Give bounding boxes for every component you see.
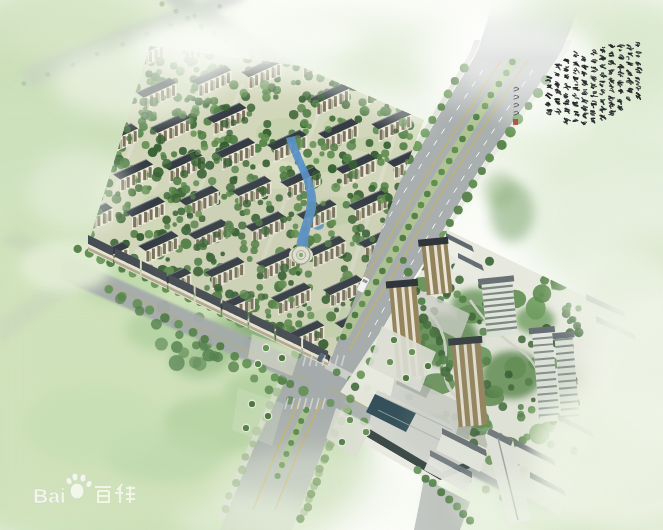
- svg-text:Bai: Bai: [33, 484, 66, 507]
